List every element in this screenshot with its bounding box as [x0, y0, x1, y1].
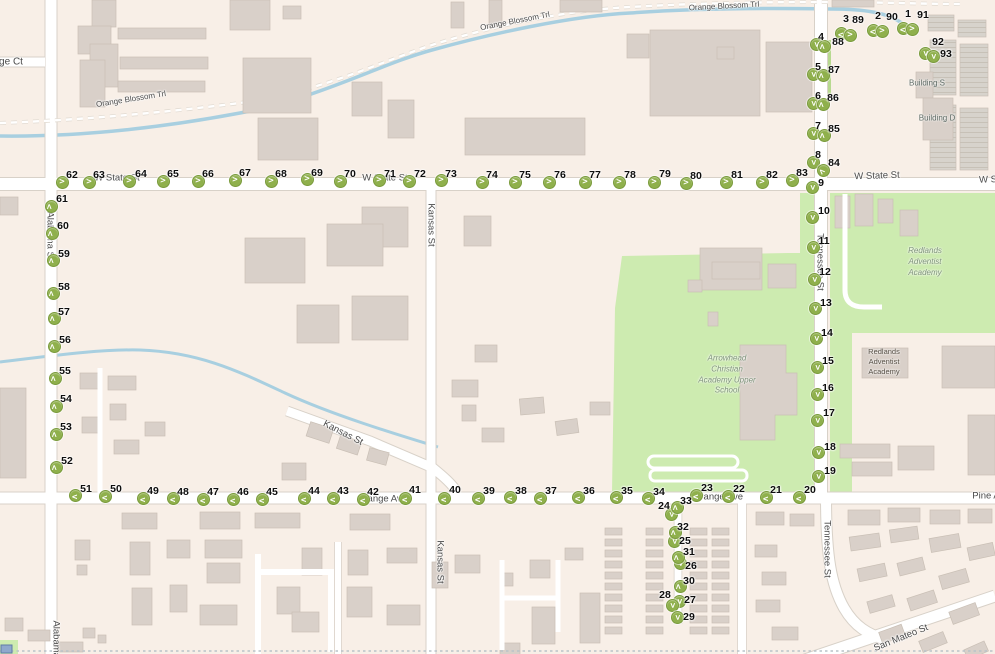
marker-number-label: 76 — [554, 169, 566, 181]
direction-arrow-icon: > — [438, 176, 443, 185]
direction-arrow-icon: > — [46, 203, 55, 208]
marker-number-label: 71 — [384, 168, 396, 180]
marker-number-label: 7 — [815, 120, 821, 132]
direction-arrow-icon: > — [909, 25, 914, 34]
marker-number-label: 37 — [545, 485, 557, 497]
route-marker-93[interactable]: > — [927, 50, 940, 63]
direction-arrow-icon: > — [669, 538, 678, 543]
marker-number-label: 43 — [337, 485, 349, 497]
direction-arrow-icon: > — [47, 230, 56, 235]
direction-arrow-icon: > — [683, 179, 688, 188]
street-label: Kansas St — [426, 203, 437, 246]
marker-number-label: 86 — [827, 92, 839, 104]
marker-number-label: 47 — [207, 486, 219, 498]
direction-arrow-icon: > — [301, 494, 306, 503]
marker-number-label: 11 — [818, 235, 829, 247]
marker-number-label: 1 — [905, 8, 911, 20]
route-marker-17[interactable]: > — [811, 414, 824, 427]
direction-arrow-icon: > — [870, 26, 875, 35]
direction-arrow-icon: > — [819, 132, 828, 137]
direction-arrow-icon: > — [86, 178, 91, 187]
direction-arrow-icon: > — [126, 177, 131, 186]
direction-arrow-icon: > — [789, 176, 794, 185]
direction-arrow-icon: > — [304, 175, 309, 184]
marker-number-label: 29 — [683, 611, 695, 623]
marker-number-label: 20 — [804, 484, 816, 496]
direction-arrow-icon: > — [811, 335, 820, 340]
direction-arrow-icon: > — [232, 176, 237, 185]
route-marker-9[interactable]: > — [806, 181, 819, 194]
marker-number-label: 2 — [875, 10, 881, 22]
route-marker-19[interactable]: > — [812, 470, 825, 483]
direction-arrow-icon: > — [170, 494, 175, 503]
direction-arrow-icon: > — [819, 43, 828, 48]
marker-number-label: 40 — [449, 484, 461, 496]
direction-arrow-icon: > — [812, 417, 821, 422]
direction-arrow-icon: > — [512, 178, 517, 187]
marker-number-label: 66 — [202, 168, 214, 180]
marker-number-label: 83 — [796, 167, 808, 179]
direction-arrow-icon: > — [645, 494, 650, 503]
direction-arrow-icon: > — [613, 493, 618, 502]
direction-arrow-icon: > — [268, 177, 273, 186]
direction-arrow-icon: > — [200, 495, 205, 504]
route-marker-10[interactable]: > — [806, 211, 819, 224]
marker-number-label: 56 — [59, 334, 71, 346]
direction-arrow-icon: > — [667, 602, 676, 607]
marker-number-label: 4 — [818, 31, 824, 43]
marker-number-label: 6 — [815, 90, 821, 102]
direction-arrow-icon: > — [72, 491, 77, 500]
marker-number-label: 46 — [237, 486, 249, 498]
direction-arrow-icon: > — [330, 494, 335, 503]
marker-number-label: 32 — [677, 521, 689, 533]
marker-number-label: 22 — [733, 483, 745, 495]
marker-number-label: 17 — [823, 407, 835, 419]
marker-number-label: 61 — [56, 193, 68, 205]
direction-arrow-icon: > — [546, 178, 551, 187]
marker-number-label: 24 — [658, 500, 670, 512]
marker-number-label: 88 — [832, 36, 844, 48]
marker-number-label: 78 — [624, 169, 636, 181]
marker-number-label: 67 — [239, 167, 251, 179]
direction-arrow-icon: > — [808, 244, 817, 249]
area-label: Building D — [919, 114, 955, 125]
direction-arrow-icon: > — [48, 290, 57, 295]
direction-arrow-icon: > — [810, 305, 819, 310]
marker-number-label: 14 — [821, 327, 833, 339]
marker-number-label: 53 — [60, 421, 72, 433]
direction-arrow-icon: > — [230, 495, 235, 504]
direction-arrow-icon: > — [337, 177, 342, 186]
direction-arrow-icon: > — [50, 375, 59, 380]
direction-arrow-icon: > — [49, 343, 58, 348]
marker-number-label: 5 — [815, 61, 821, 73]
marker-number-label: 70 — [344, 168, 356, 180]
marker-number-label: 59 — [58, 248, 70, 260]
marker-number-label: 63 — [93, 169, 105, 181]
direction-arrow-icon: > — [51, 464, 60, 469]
direction-arrow-icon: > — [441, 494, 446, 503]
marker-number-label: 35 — [621, 485, 633, 497]
marker-number-label: 41 — [409, 484, 421, 496]
map-canvas[interactable]: ge CtOrange Blossom TrlOrange Blossom Tr… — [0, 0, 995, 654]
marker-number-label: 15 — [822, 355, 834, 367]
direction-arrow-icon: > — [537, 494, 542, 503]
route-marker-91[interactable]: > — [906, 23, 919, 36]
direction-arrow-icon: > — [479, 178, 484, 187]
marker-number-label: 90 — [886, 11, 898, 23]
direction-arrow-icon: > — [928, 53, 937, 58]
direction-arrow-icon: > — [809, 276, 818, 281]
direction-arrow-icon: > — [879, 27, 884, 36]
direction-arrow-icon: > — [360, 495, 365, 504]
marker-number-label: 9 — [818, 177, 824, 189]
direction-arrow-icon: > — [900, 24, 905, 33]
marker-number-label: 10 — [818, 205, 830, 217]
marker-number-label: 58 — [58, 281, 70, 293]
direction-arrow-icon: > — [51, 431, 60, 436]
marker-number-label: 69 — [311, 167, 323, 179]
marker-number-label: 42 — [367, 486, 379, 498]
marker-number-label: 44 — [308, 485, 320, 497]
direction-arrow-icon: > — [673, 554, 682, 559]
street-label: ge Ct — [0, 57, 23, 68]
marker-number-label: 45 — [266, 486, 278, 498]
direction-arrow-icon: > — [847, 31, 852, 40]
marker-number-label: 51 — [80, 483, 92, 495]
marker-number-label: 64 — [135, 168, 147, 180]
marker-number-label: 75 — [519, 169, 531, 181]
route-marker-18[interactable]: > — [812, 446, 825, 459]
marker-number-label: 52 — [61, 455, 73, 467]
marker-number-label: 82 — [766, 169, 778, 181]
partial-map-icon — [1, 645, 12, 653]
marker-number-label: 13 — [820, 297, 832, 309]
direction-arrow-icon: > — [259, 495, 264, 504]
direction-arrow-icon: > — [725, 492, 730, 501]
marker-number-label: 19 — [824, 465, 836, 477]
direction-arrow-icon: > — [818, 165, 828, 175]
direction-arrow-icon: > — [818, 101, 827, 106]
direction-arrow-icon: > — [813, 449, 822, 454]
area-label: Building S — [909, 79, 945, 90]
direction-arrow-icon: > — [102, 492, 107, 501]
direction-arrow-icon: > — [59, 178, 64, 187]
direction-arrow-icon: > — [796, 493, 801, 502]
route-marker-89[interactable]: > — [844, 29, 857, 42]
direction-arrow-icon: > — [723, 178, 728, 187]
marker-number-label: 77 — [589, 169, 601, 181]
marker-number-label: 27 — [684, 594, 696, 606]
marker-number-label: 50 — [110, 483, 122, 495]
marker-number-label: 72 — [414, 168, 426, 180]
direction-arrow-icon: > — [376, 176, 381, 185]
area-label: Arrowhead Christian Academy Upper School — [698, 353, 755, 396]
marker-number-label: 28 — [659, 589, 671, 601]
direction-arrow-icon: > — [616, 178, 621, 187]
marker-number-label: 87 — [828, 64, 840, 76]
marker-number-label: 33 — [680, 495, 692, 507]
direction-arrow-icon: > — [140, 494, 145, 503]
marker-number-label: 31 — [683, 546, 695, 558]
marker-number-label: 57 — [58, 306, 70, 318]
street-label: Pine A — [972, 491, 995, 502]
marker-number-label: 89 — [852, 14, 864, 26]
direction-arrow-icon: > — [582, 178, 587, 187]
marker-number-label: 38 — [515, 485, 527, 497]
marker-number-label: 12 — [819, 266, 831, 278]
direction-arrow-icon: > — [812, 391, 821, 396]
area-label: Redlands Adventist Academy — [868, 347, 900, 377]
direction-arrow-icon: > — [402, 494, 407, 503]
route-marker-29[interactable]: > — [671, 611, 684, 624]
marker-number-label: 18 — [824, 441, 836, 453]
street-label: W S — [979, 174, 995, 186]
direction-arrow-icon: > — [812, 364, 821, 369]
marker-number-label: 8 — [815, 149, 821, 161]
marker-number-label: 26 — [685, 560, 697, 572]
direction-arrow-icon: > — [693, 491, 698, 500]
area-label: Redlands Adventist Academy — [908, 246, 942, 278]
direction-arrow-icon: > — [406, 177, 411, 186]
direction-arrow-icon: > — [672, 614, 681, 619]
marker-number-label: 55 — [59, 365, 71, 377]
direction-arrow-icon: > — [807, 214, 816, 219]
marker-number-label: 68 — [275, 168, 287, 180]
marker-number-label: 93 — [940, 48, 952, 60]
marker-number-label: 34 — [653, 486, 665, 498]
direction-arrow-icon: > — [651, 178, 656, 187]
marker-number-label: 62 — [66, 169, 78, 181]
direction-arrow-icon: > — [507, 493, 512, 502]
marker-number-label: 91 — [917, 9, 929, 21]
marker-number-label: 48 — [177, 486, 189, 498]
marker-number-label: 79 — [659, 168, 671, 180]
marker-number-label: 73 — [445, 168, 457, 180]
street-label: W State St — [854, 170, 900, 183]
street-label: Kansas St — [435, 540, 446, 583]
marker-number-label: 23 — [701, 482, 713, 494]
marker-number-label: 85 — [828, 123, 840, 135]
marker-number-label: 60 — [57, 220, 69, 232]
marker-number-label: 84 — [828, 157, 840, 169]
route-marker-64[interactable]: > — [123, 175, 136, 188]
direction-arrow-icon: > — [818, 72, 827, 77]
direction-arrow-icon: > — [49, 315, 58, 320]
marker-number-label: 54 — [60, 393, 72, 405]
direction-arrow-icon: > — [763, 493, 768, 502]
direction-arrow-icon: > — [160, 177, 165, 186]
direction-arrow-icon: > — [51, 403, 60, 408]
direction-arrow-icon: > — [195, 177, 200, 186]
direction-arrow-icon: > — [759, 178, 764, 187]
marker-number-label: 36 — [583, 485, 595, 497]
marker-number-label: 65 — [167, 168, 179, 180]
marker-number-label: 80 — [690, 170, 702, 182]
street-label: Tennessee St — [822, 520, 833, 578]
marker-number-label: 92 — [932, 36, 944, 48]
route-marker-90[interactable]: > — [876, 25, 889, 38]
marker-number-label: 16 — [822, 382, 834, 394]
marker-number-label: 39 — [483, 485, 495, 497]
marker-number-label: 81 — [731, 169, 743, 181]
marker-number-label: 3 — [843, 13, 849, 25]
street-label: Alabama St — [51, 620, 62, 654]
direction-arrow-icon: > — [807, 184, 816, 189]
direction-arrow-icon: > — [813, 473, 822, 478]
direction-arrow-icon: > — [575, 493, 580, 502]
direction-arrow-icon: > — [475, 494, 480, 503]
marker-number-label: 30 — [683, 575, 695, 587]
direction-arrow-icon: > — [48, 257, 57, 262]
marker-number-label: 74 — [486, 169, 498, 181]
marker-number-label: 21 — [770, 484, 782, 496]
marker-number-label: 49 — [147, 485, 159, 497]
